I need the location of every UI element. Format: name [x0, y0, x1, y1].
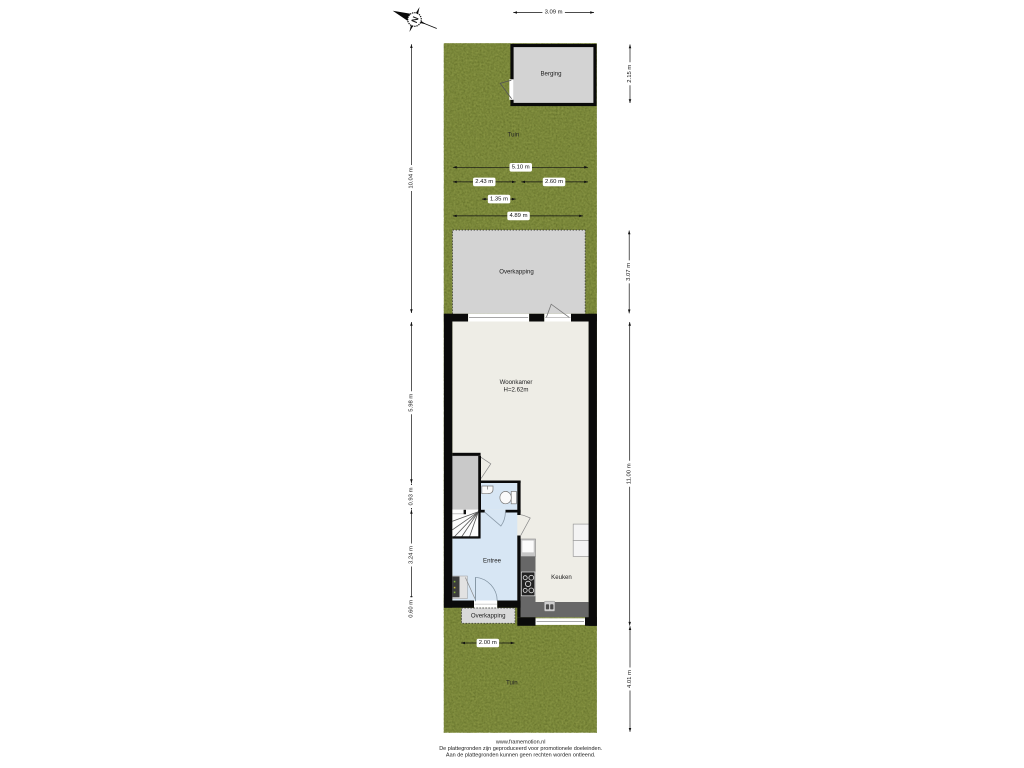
svg-text:2.00 m: 2.00 m — [479, 640, 497, 646]
svg-text:5.10 m: 5.10 m — [512, 165, 530, 171]
svg-text:0.60 m: 0.60 m — [408, 600, 414, 618]
svg-text:Berging: Berging — [540, 71, 561, 78]
svg-text:3.07 m: 3.07 m — [626, 263, 632, 281]
svg-text:H=2.62m: H=2.62m — [504, 387, 529, 394]
svg-text:Overkapping: Overkapping — [471, 612, 506, 619]
svg-text:5.98 m: 5.98 m — [408, 394, 414, 412]
svg-text:3.24 m: 3.24 m — [408, 546, 414, 564]
svg-text:2.43 m: 2.43 m — [475, 179, 493, 185]
svg-text:Tuin: Tuin — [508, 132, 520, 139]
svg-text:4.01 m: 4.01 m — [627, 670, 633, 688]
svg-text:Aan de plattegronden kunnen ge: Aan de plattegronden kunnen geen rechten… — [446, 753, 596, 759]
svg-text:Overkapping: Overkapping — [499, 269, 534, 276]
svg-text:4.89 m: 4.89 m — [509, 213, 527, 219]
svg-text:11.00 m: 11.00 m — [627, 463, 633, 484]
svg-text:De plattegronden zijn geproduc: De plattegronden zijn geproduceerd voor … — [439, 746, 602, 752]
svg-text:1.35 m: 1.35 m — [490, 196, 508, 202]
svg-text:Tuin: Tuin — [506, 680, 518, 687]
svg-text:0.93 m: 0.93 m — [408, 487, 414, 505]
svg-text:2.15 m: 2.15 m — [627, 65, 633, 83]
svg-text:10.04 m: 10.04 m — [408, 167, 414, 188]
svg-text:Keuken: Keuken — [551, 574, 572, 581]
svg-text:2.60 m: 2.60 m — [545, 179, 563, 185]
svg-text:3.09 m: 3.09 m — [545, 10, 563, 16]
svg-text:Woonkamer: Woonkamer — [500, 379, 533, 386]
svg-text:Entree: Entree — [483, 557, 502, 564]
svg-text:www.framemotion.nl: www.framemotion.nl — [495, 740, 546, 746]
